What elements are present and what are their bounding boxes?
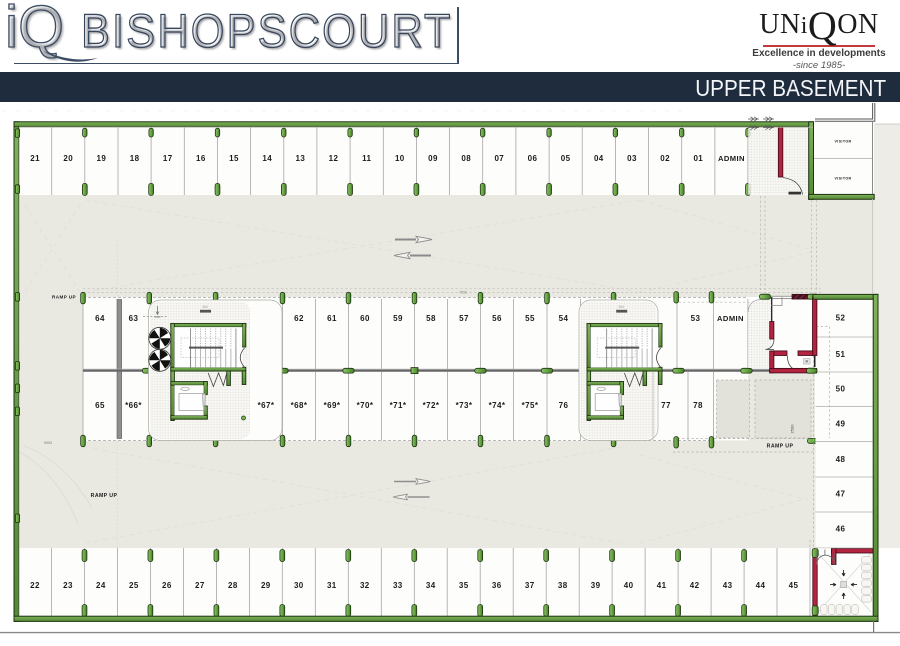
svg-text:37: 37 [525, 581, 535, 590]
svg-text:41: 41 [657, 581, 667, 590]
svg-text:46: 46 [836, 525, 846, 534]
svg-text:10: 10 [395, 154, 405, 163]
svg-text:09: 09 [428, 154, 438, 163]
svg-text:24: 24 [96, 581, 106, 590]
svg-text:*73*: *73* [456, 401, 473, 410]
svg-text:*71*: *71* [390, 401, 407, 410]
svg-text:30: 30 [294, 581, 304, 590]
svg-text:06: 06 [528, 154, 538, 163]
svg-text:47: 47 [836, 490, 846, 499]
svg-text:*74*: *74* [489, 401, 506, 410]
svg-text:9003: 9003 [44, 441, 52, 445]
svg-text:15: 15 [229, 154, 239, 163]
svg-text:58: 58 [426, 314, 436, 323]
svg-text:264: 264 [618, 305, 624, 309]
svg-text:35: 35 [459, 581, 469, 590]
svg-text:*72*: *72* [423, 401, 440, 410]
svg-text:29: 29 [261, 581, 271, 590]
svg-text:23: 23 [63, 581, 73, 590]
svg-text:07: 07 [494, 154, 504, 163]
svg-text:01: 01 [693, 154, 703, 163]
svg-text:VISITOR: VISITOR [834, 140, 851, 144]
svg-text:18: 18 [130, 154, 140, 163]
svg-text:43: 43 [723, 581, 733, 590]
svg-text:55: 55 [525, 314, 535, 323]
svg-text:21: 21 [30, 154, 40, 163]
svg-text:14: 14 [262, 154, 272, 163]
svg-text:RAMP UP: RAMP UP [91, 493, 118, 499]
svg-text:*70*: *70* [357, 401, 374, 410]
svg-text:62: 62 [294, 314, 304, 323]
svg-text:2500: 2500 [790, 424, 795, 434]
svg-text:54: 54 [559, 314, 569, 323]
svg-text:12: 12 [329, 154, 339, 163]
svg-text:65: 65 [95, 401, 105, 410]
svg-text:20: 20 [63, 154, 73, 163]
svg-text:27: 27 [195, 581, 205, 590]
svg-text:38: 38 [558, 581, 568, 590]
svg-text:76: 76 [559, 401, 569, 410]
svg-text:25: 25 [129, 581, 139, 590]
svg-text:53: 53 [691, 314, 701, 323]
svg-text:36: 36 [492, 581, 502, 590]
svg-text:49: 49 [836, 420, 846, 429]
svg-text:50: 50 [836, 385, 846, 394]
svg-text:31: 31 [327, 581, 337, 590]
svg-text:04: 04 [594, 154, 604, 163]
svg-text:03: 03 [627, 154, 637, 163]
svg-text:RAMP UP: RAMP UP [52, 294, 76, 299]
svg-text:13: 13 [296, 154, 306, 163]
svg-text:64: 64 [95, 314, 105, 323]
svg-text:02: 02 [660, 154, 670, 163]
svg-text:11: 11 [362, 154, 371, 163]
svg-text:34: 34 [426, 581, 436, 590]
svg-text:48: 48 [836, 455, 846, 464]
svg-text:05: 05 [561, 154, 571, 163]
svg-text:59: 59 [393, 314, 403, 323]
svg-text:42: 42 [690, 581, 700, 590]
svg-text:ADMIN: ADMIN [717, 314, 744, 323]
svg-text:*75*: *75* [522, 401, 539, 410]
svg-text:16: 16 [196, 154, 206, 163]
svg-text:*69*: *69* [324, 401, 341, 410]
svg-text:22: 22 [30, 581, 40, 590]
svg-text:33: 33 [393, 581, 403, 590]
svg-text:51: 51 [836, 350, 846, 359]
svg-text:ADMIN: ADMIN [718, 154, 745, 163]
svg-text:RAMP UP: RAMP UP [767, 444, 794, 450]
svg-text:17: 17 [163, 154, 173, 163]
svg-text:40: 40 [624, 581, 634, 590]
svg-text:45: 45 [789, 581, 799, 590]
svg-text:*67*: *67* [258, 401, 275, 410]
svg-text:52: 52 [836, 314, 846, 323]
svg-text:57: 57 [459, 314, 469, 323]
svg-text:39: 39 [591, 581, 601, 590]
svg-text:08: 08 [461, 154, 471, 163]
svg-text:*68*: *68* [291, 401, 308, 410]
svg-text:32: 32 [360, 581, 370, 590]
svg-text:60: 60 [360, 314, 370, 323]
svg-text:26: 26 [162, 581, 172, 590]
svg-text:63: 63 [129, 314, 139, 323]
svg-text:*66*: *66* [125, 401, 142, 410]
svg-text:VISITOR: VISITOR [834, 177, 851, 181]
svg-text:78: 78 [693, 401, 703, 410]
svg-text:77: 77 [661, 401, 671, 410]
svg-text:264: 264 [202, 305, 208, 309]
svg-text:28: 28 [228, 581, 238, 590]
svg-text:44: 44 [756, 581, 766, 590]
svg-text:7650: 7650 [459, 291, 467, 295]
svg-text:61: 61 [327, 314, 337, 323]
svg-text:19: 19 [97, 154, 107, 163]
svg-text:56: 56 [492, 314, 502, 323]
